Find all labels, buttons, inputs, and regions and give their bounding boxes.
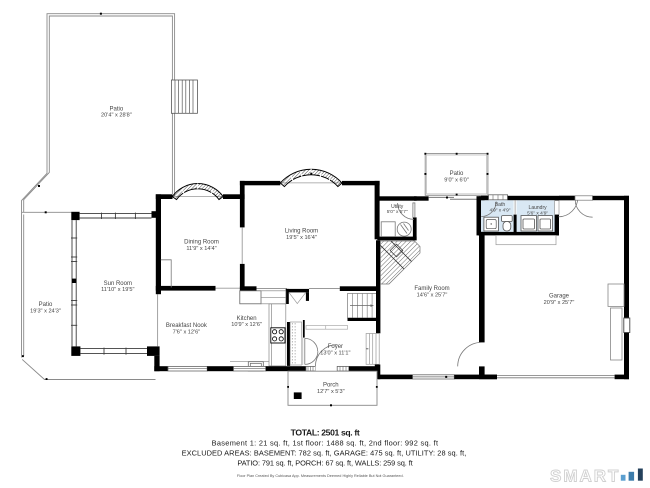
svg-text:13'0" x 11'1": 13'0" x 11'1" (320, 350, 350, 356)
svg-text:Dining Room: Dining Room (184, 240, 219, 246)
svg-text:PATIO: 791 sq. ft, PORCH: 67 s: PATIO: 791 sq. ft, PORCH: 67 sq. ft, WAL… (237, 458, 412, 467)
svg-text:19'3" x 24'3": 19'3" x 24'3" (30, 309, 61, 315)
svg-text:Garage: Garage (549, 294, 570, 300)
svg-text:Foyer: Foyer (328, 344, 343, 350)
svg-text:Patio: Patio (450, 171, 464, 177)
svg-text:9'0" x 6'0": 9'0" x 6'0" (444, 177, 468, 183)
svg-text:SMART: SMART (550, 467, 620, 486)
svg-text:20'4" x 28'8": 20'4" x 28'8" (101, 113, 132, 119)
svg-text:EXCLUDED AREAS: BASEMENT: 782: EXCLUDED AREAS: BASEMENT: 782 sq. ft, GA… (182, 448, 467, 457)
svg-text:Basement 1: 21 sq. ft, 1st flo: Basement 1: 21 sq. ft, 1st floor: 1488 s… (212, 438, 439, 447)
svg-text:10'9" x 12'6": 10'9" x 12'6" (231, 322, 262, 328)
svg-text:7'6" x 12'6": 7'6" x 12'6" (173, 330, 201, 336)
svg-text:Sun Room: Sun Room (104, 281, 132, 287)
svg-text:12'7" x 5'3": 12'7" x 5'3" (317, 389, 345, 395)
svg-text:4'9" x 4'9": 4'9" x 4'9" (490, 207, 511, 213)
svg-text:5'0" x 5'7": 5'0" x 5'7" (387, 209, 408, 215)
svg-text:Kitchen: Kitchen (237, 316, 257, 322)
svg-text:Patio: Patio (110, 106, 124, 112)
svg-text:11'10" x 19'5": 11'10" x 19'5" (101, 287, 134, 293)
svg-text:Porch: Porch (323, 383, 339, 389)
svg-text:5'6" x 4'9": 5'6" x 4'9" (527, 210, 548, 216)
svg-text:11'9" x 14'4": 11'9" x 14'4" (186, 246, 216, 252)
svg-text:Patio: Patio (39, 302, 53, 308)
svg-text:Living Room: Living Room (285, 229, 318, 235)
svg-text:14'6" x 25'7": 14'6" x 25'7" (417, 292, 448, 298)
svg-text:Bath: Bath (495, 202, 506, 208)
svg-text:Laundry: Laundry (529, 205, 548, 211)
svg-text:TOTAL: 2501 sq. ft: TOTAL: 2501 sq. ft (291, 427, 360, 437)
svg-text:Breakfast Nook: Breakfast Nook (166, 323, 208, 329)
svg-text:19'5" x 16'4": 19'5" x 16'4" (286, 235, 317, 241)
svg-text:Floor Plan Created By Cubicasa: Floor Plan Created By Cubicasa App. Meas… (237, 474, 404, 478)
svg-text:Family Room: Family Room (414, 286, 449, 292)
svg-text:20'9" x 25'7": 20'9" x 25'7" (544, 300, 575, 306)
